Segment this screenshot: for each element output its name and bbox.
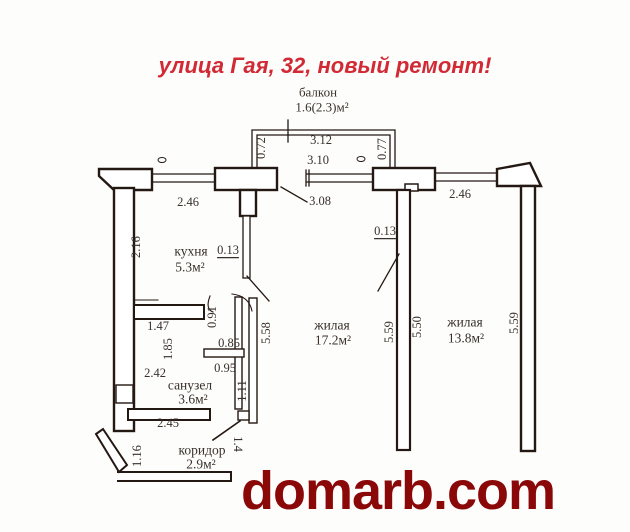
dim: 0.77 xyxy=(375,138,389,160)
dim: 2.16 xyxy=(129,236,143,258)
wall-between-living-rooms xyxy=(397,190,410,450)
wall-pier-1 xyxy=(215,168,277,190)
room-bathroom-area: 3.6м² xyxy=(178,392,207,407)
wall-pier-2 xyxy=(373,168,435,190)
window-living1 xyxy=(306,170,373,186)
room-living1-name: жилая xyxy=(313,318,350,333)
dim: 2.42 xyxy=(144,366,166,380)
room-kitchen-name: кухня xyxy=(174,244,207,259)
vent-mark xyxy=(158,158,166,163)
wall-pier-1-stem xyxy=(240,190,256,216)
window-kitchen xyxy=(152,174,215,182)
wall-kitchen-bottom xyxy=(134,305,204,319)
door-leaf-living1 xyxy=(378,254,399,291)
room-balcony-area: 1.6(2.3)м² xyxy=(295,100,348,115)
room-balcony-name: балкон xyxy=(299,85,337,100)
dim: 5.58 xyxy=(259,322,273,344)
dim: 2.46 xyxy=(449,187,471,201)
dim: 0.72 xyxy=(254,137,268,159)
wall-kitchen-thin xyxy=(243,216,250,278)
room-kitchen-area: 5.3м² xyxy=(175,260,204,275)
dim: 3.08 xyxy=(309,194,331,208)
dim: 5.59 xyxy=(507,312,521,334)
wall-left-nook xyxy=(116,385,133,403)
dim: 3.12 xyxy=(310,133,332,147)
window-living2 xyxy=(435,169,499,185)
dim: 2.46 xyxy=(177,195,199,209)
room-living2-name: жилая xyxy=(446,315,483,330)
wall-right xyxy=(521,186,535,451)
wall-left-slanted xyxy=(96,429,127,472)
dim: 1.11 xyxy=(235,380,249,401)
dim: 1.4 xyxy=(231,436,245,452)
vent-mark xyxy=(357,157,365,162)
room-corridor-area: 2.9м² xyxy=(186,457,215,472)
dim: 5.59 xyxy=(382,321,396,343)
wall-partition-foot xyxy=(238,411,249,420)
dim: 0.95 xyxy=(214,361,236,375)
dim: 1.85 xyxy=(161,338,175,360)
room-living1-area: 17.2м² xyxy=(315,333,351,348)
door-leaf-kitchen xyxy=(247,276,269,301)
dim: 0.85 xyxy=(218,336,240,350)
wall-nook xyxy=(204,349,244,357)
dim: 5.50 xyxy=(410,316,424,338)
dim: 1.16 xyxy=(130,445,144,467)
dim: 0.13 xyxy=(217,243,239,257)
leader-3-08 xyxy=(281,187,307,202)
room-corridor-name: коридор xyxy=(179,443,226,458)
floor-plan-page: { "title": { "text": "улица Гая, 32, нов… xyxy=(0,0,630,532)
dim: 2.45 xyxy=(157,416,179,430)
wall-corner-topright xyxy=(497,163,541,186)
wall-hall-living1 xyxy=(249,298,257,423)
dim: 0.13 xyxy=(374,224,396,238)
room-bathroom-name: санузел xyxy=(168,378,212,393)
dim: 0.91 xyxy=(205,306,219,328)
room-living2-area: 13.8м² xyxy=(448,331,484,346)
floor-plan-svg: балкон1.6(2.3)м²3.123.100.720.772.463.08… xyxy=(0,0,630,532)
watermark: domarb.com xyxy=(241,460,555,522)
dim: 3.10 xyxy=(307,153,329,167)
dim: 1.47 xyxy=(147,319,169,333)
wall-corridor-bottom xyxy=(118,472,231,481)
